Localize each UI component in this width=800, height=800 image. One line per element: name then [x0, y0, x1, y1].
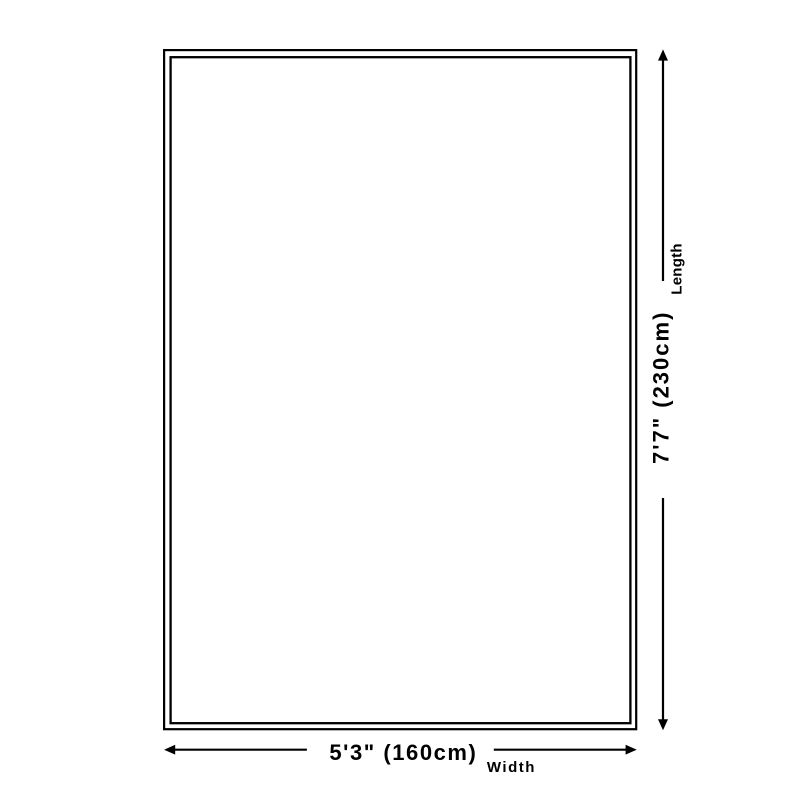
svg-text:Length: Length	[669, 243, 686, 295]
svg-text:Width: Width	[487, 759, 536, 776]
svg-text:5'3" (160cm): 5'3" (160cm)	[329, 740, 477, 765]
svg-text:7'7" (230cm): 7'7" (230cm)	[649, 311, 674, 464]
